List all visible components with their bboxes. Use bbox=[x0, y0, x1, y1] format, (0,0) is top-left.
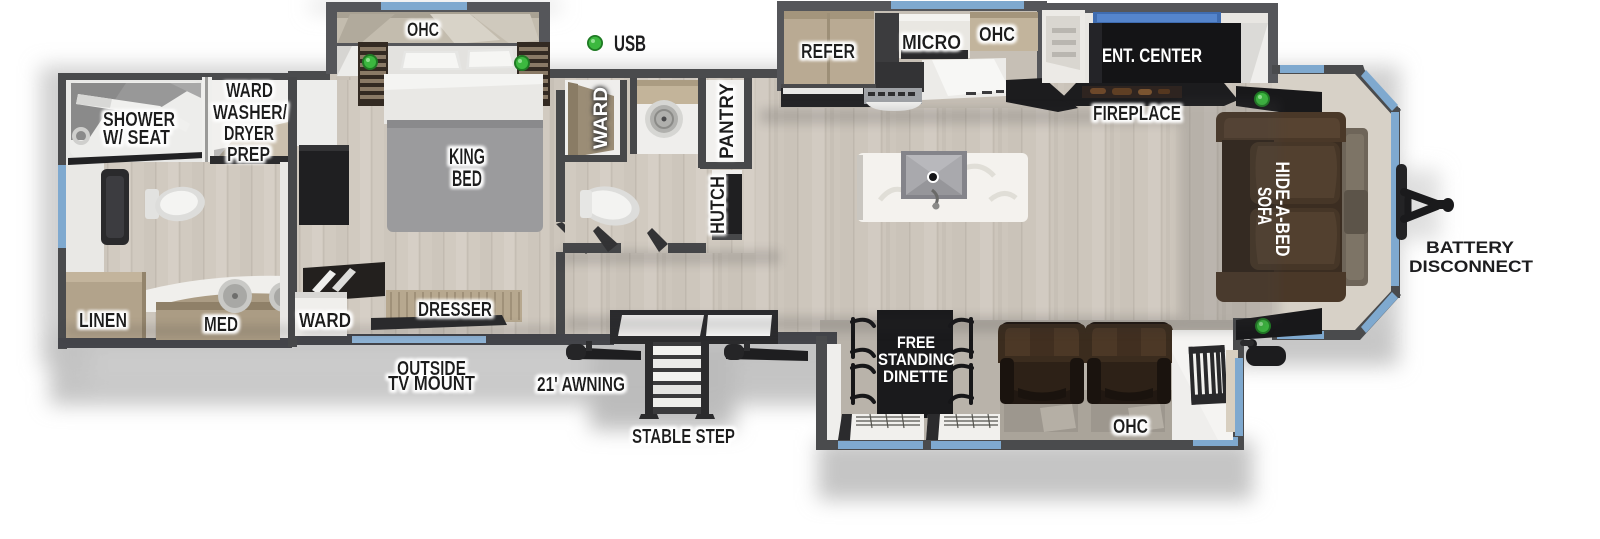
svg-text:DRYER: DRYER bbox=[224, 123, 274, 145]
svg-text:STABLE STEP: STABLE STEP bbox=[632, 426, 735, 448]
svg-text:ENT. CENTER: ENT. CENTER bbox=[1102, 46, 1202, 67]
svg-text:DINETTE: DINETTE bbox=[883, 367, 948, 386]
svg-text:FIREPLACE: FIREPLACE bbox=[1093, 103, 1181, 125]
svg-text:MICRO: MICRO bbox=[902, 32, 961, 54]
svg-text:HUTCH: HUTCH bbox=[708, 176, 729, 234]
svg-text:MED: MED bbox=[204, 314, 238, 336]
svg-text:DISCONNECT: DISCONNECT bbox=[1409, 257, 1534, 276]
svg-text:WARD: WARD bbox=[226, 80, 273, 102]
svg-text:SOFA: SOFA bbox=[1253, 187, 1274, 225]
svg-text:WARD: WARD bbox=[299, 310, 351, 332]
svg-text:LINEN: LINEN bbox=[79, 310, 127, 332]
svg-text:USB: USB bbox=[614, 31, 646, 56]
svg-text:BATTERY: BATTERY bbox=[1426, 238, 1515, 257]
svg-text:BED: BED bbox=[452, 166, 482, 191]
svg-text:TV MOUNT: TV MOUNT bbox=[388, 373, 475, 395]
svg-text:DRESSER: DRESSER bbox=[418, 299, 492, 321]
svg-text:WASHER/: WASHER/ bbox=[213, 102, 287, 124]
svg-text:WARD: WARD bbox=[591, 87, 612, 149]
svg-text:W/ SEAT: W/ SEAT bbox=[103, 127, 170, 149]
svg-text:OHC: OHC bbox=[407, 20, 439, 41]
svg-text:REFER: REFER bbox=[801, 41, 855, 63]
svg-text:21' AWNING: 21' AWNING bbox=[537, 374, 625, 396]
svg-text:OHC: OHC bbox=[979, 24, 1015, 46]
svg-text:PREP: PREP bbox=[227, 144, 270, 166]
svg-text:PANTRY: PANTRY bbox=[717, 83, 738, 159]
svg-text:OHC: OHC bbox=[1113, 416, 1148, 438]
